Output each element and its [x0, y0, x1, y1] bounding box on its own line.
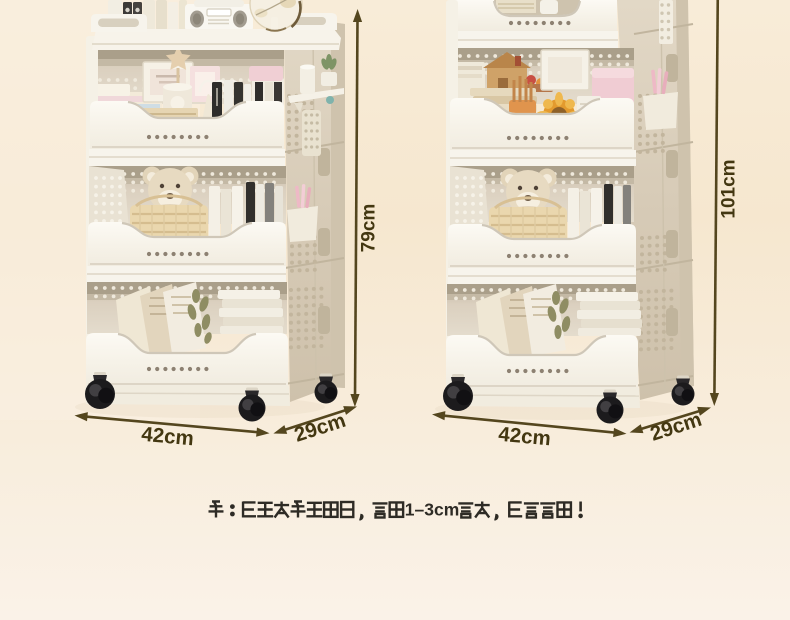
svg-text:1–3cm: 1–3cm: [405, 499, 460, 519]
svg-text:42cm: 42cm: [140, 423, 194, 451]
svg-text:101cm: 101cm: [719, 159, 740, 218]
svg-text:79cm: 79cm: [359, 204, 380, 253]
svg-text:42cm: 42cm: [497, 423, 551, 451]
